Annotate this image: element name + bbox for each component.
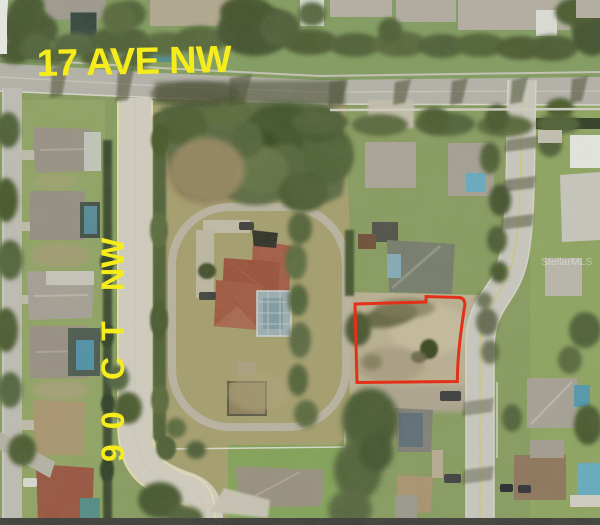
svg-text:NW: NW	[95, 237, 131, 291]
svg-text:StellarMLS: StellarMLS	[541, 256, 592, 268]
svg-text:17 AVE NW: 17 AVE NW	[36, 39, 232, 85]
svg-text:CT: CT	[95, 305, 131, 380]
svg-text:90: 90	[95, 396, 131, 462]
